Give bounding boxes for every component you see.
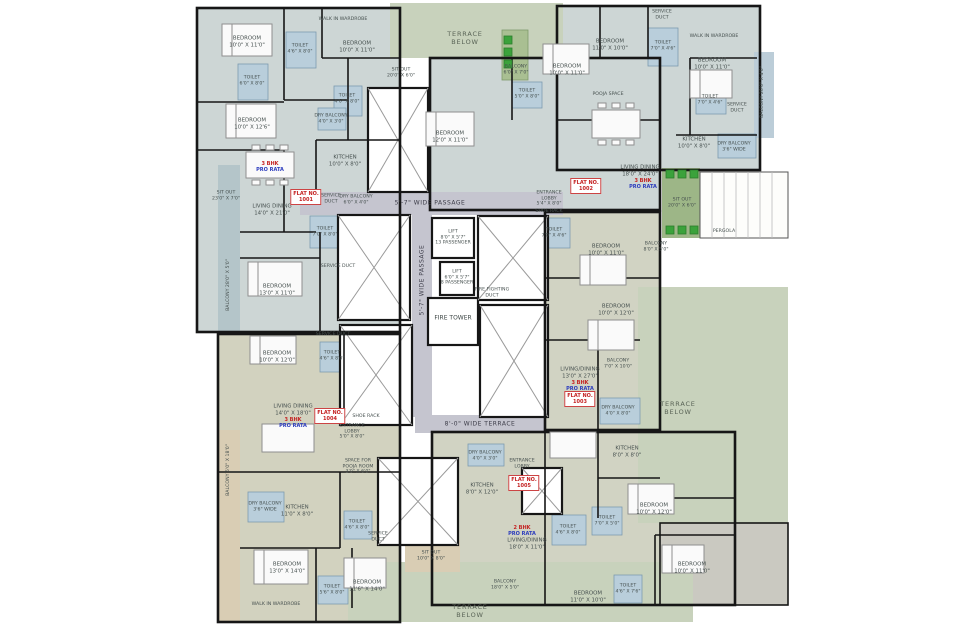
sitout-label: SIT OUT 20'0" X 6'0" xyxy=(387,67,415,78)
flat-number-badge: FLAT NO. 1004 xyxy=(314,408,345,424)
entrance-lobby-right-label: ENTRANCE LOBBY 5'4" X 8'0" xyxy=(536,191,561,208)
service-duct-label: SERVICE DUCT xyxy=(321,193,341,204)
sitout-label: SIT OUT 23'0" X 7'0" xyxy=(212,190,240,201)
dry-balcony-label: DRY BALCONY 6'0" X 4'0" xyxy=(339,194,372,205)
pooja-space-label: POOJA SPACE xyxy=(592,92,623,98)
dry-balcony-label: DRY BALCONY 3'6" WIDE xyxy=(717,141,750,152)
terrace-below-label: TERRACE BELOW xyxy=(660,400,695,416)
bedroom-label: BEDROOM 13'0" X 14'0" xyxy=(269,561,305,575)
flat-type-label: 3 BHK xyxy=(571,380,588,386)
bedroom-label: BEDROOM 10'0" X 11'0" xyxy=(229,35,265,49)
flat-number-badge: FLAT NO. 1003 xyxy=(564,391,595,407)
toilet-label: TOILET 4'6" X 8'0" xyxy=(319,350,344,361)
entrance-lobby-label: ENTRANCE LOBBY xyxy=(509,458,534,469)
balcony-label: BALCONY 5'0" X 18'0" xyxy=(226,444,232,496)
balcony-label: BALCONY 8'0" X 5'0" xyxy=(643,241,668,252)
bedroom-label: BEDROOM 10'0" X 11'0" xyxy=(674,561,710,575)
balcony-label: BALCONY 28'0" X 5'0" xyxy=(226,259,232,311)
toilet-label: TOILET 5'0" X 8'0" xyxy=(514,88,539,99)
passage-vertical-label: 5'-7" WIDE PASSAGE xyxy=(418,245,426,316)
kitchen-label: KITCHEN 8'0" X 8'0" xyxy=(613,445,642,459)
entrance-lobby-left-label: ENTRANCE LOBBY 5'0" X 8'0" xyxy=(339,424,364,441)
pergola-label: PERGOLA xyxy=(713,229,735,235)
dry-balcony-label: DRY BALCONY 4'0" X 3'0" xyxy=(314,113,347,124)
wardrobe-label: WALK IN WARDROBE xyxy=(319,17,368,23)
fire-duct-label: FIRE FIGHTING DUCT xyxy=(475,287,509,298)
bedroom-label: BEDROOM 11'0" X 10'0" xyxy=(570,590,606,604)
terrace-passage-label: 8'-0" WIDE TERRACE xyxy=(445,420,516,428)
living-dining-label: LIVING/DINING 13'0" X 27'0" xyxy=(560,366,599,380)
shoe-rack-right-label: SHOE RACK xyxy=(535,209,562,215)
flat-type-label: 3 BHK xyxy=(261,161,278,167)
flat-number-badge: FLAT NO. 1002 xyxy=(570,178,601,194)
flat-type-label: 3 BHK xyxy=(284,417,301,423)
toilet-label: TOILET 4'6" X 7'6" xyxy=(615,583,640,594)
bedroom-label: BEDROOM 10'0" X 11'0" xyxy=(549,63,585,77)
bedroom-label: BEDROOM 10'0" X 12'6" xyxy=(234,117,270,131)
toilet-label: TOILET 6'0" X 8'0" xyxy=(239,75,264,86)
bedroom-label: BEDROOM 10'0" X 11'0" xyxy=(694,57,730,71)
flat-number-badge: FLAT NO. 1001 xyxy=(290,189,321,205)
balcony-label: BALCONY 20'0" X 4'0" xyxy=(760,66,766,118)
toilet-core-label: TOILET 7'0" X 4'6" xyxy=(541,227,566,238)
fire-tower-label: FIRE TOWER xyxy=(434,314,471,322)
lift-13-passenger-label: LIFT 8'0" X 5'7" 13 PASSENGER xyxy=(435,230,470,247)
floor-plan: 5'-7" WIDE PASSAGE5'-7" WIDE PASSAGE8'-0… xyxy=(0,0,957,625)
passage-top-label: 5'-7" WIDE PASSAGE xyxy=(395,199,466,207)
bedroom-label: BEDROOM 11'6" X 14'0" xyxy=(349,579,385,593)
bedroom-label: BEDROOM 10'0" X 12'0" xyxy=(598,303,634,317)
service-duct-label: SERVICE DUCT xyxy=(652,9,672,20)
dry-balcony-label: DRY BALCONY 4'0" X 3'0" xyxy=(468,450,501,461)
terrace-below-label: TERRACE BELOW xyxy=(452,603,487,619)
toilet-label: TOILET 4'6" X 8'0" xyxy=(287,43,312,54)
bedroom-label: BEDROOM 10'0" X 12'0" xyxy=(259,350,295,364)
pooja-room-label: SPACE FOR POOJA ROOM 3'0" X 6'0" xyxy=(343,459,374,476)
service-duct-label: SERVICE DUCT xyxy=(368,531,388,542)
kitchen-label: KITCHEN 10'0" X 8'0" xyxy=(329,154,361,168)
dry-balcony-label: DRY BALCONY 4'0" X 8'0" xyxy=(601,405,634,416)
labels-layer: 5'-7" WIDE PASSAGE5'-7" WIDE PASSAGE8'-0… xyxy=(0,0,957,625)
shoe-rack-left-label: SHOE RACK xyxy=(352,414,379,420)
balcony-label: BALCONY 7'0" X 10'0" xyxy=(604,358,632,369)
pro-rata-label: PRO RATA xyxy=(256,167,284,173)
pro-rata-label: PRO RATA xyxy=(566,386,594,392)
kitchen-label: KITCHEN 8'0" X 12'0" xyxy=(466,482,498,496)
flat-type-label: 3 BHK xyxy=(634,178,651,184)
bedroom-label: BEDROOM 10'0" X 11'0" xyxy=(339,40,375,54)
kitchen-label: KITCHEN 10'0" X 8'0" xyxy=(678,136,710,150)
bedroom-label: BEDROOM 10'0" X 12'0" xyxy=(636,502,672,516)
balcony-label: BALCONY 18'0" X 5'0" xyxy=(491,579,519,590)
sitout-label: SIT OUT 20'0" X 6'0" xyxy=(668,197,696,208)
toilet-label: TOILET 7'0" X 4'6" xyxy=(650,40,675,51)
terrace-below-label: TERRACE BELOW xyxy=(447,30,482,46)
toilet-label: TOILET 7'0" X 4'6" xyxy=(697,94,722,105)
toilet-label: TOILET 5'6" X 8'0" xyxy=(319,584,344,595)
service-duct-label: SERVICE DUCT xyxy=(727,102,747,113)
service-duct-label: SERVICE DUCT xyxy=(321,264,355,270)
bedroom-label: BEDROOM 12'0" X 11'0" xyxy=(432,130,468,144)
living-dining-label: LIVING DINING 18'0" X 24'0" xyxy=(620,164,659,178)
living-dining-label: LIVING DINING 14'0" X 18'0" xyxy=(273,403,312,417)
wardrobe-label: WALK IN WARDROBE xyxy=(690,34,739,40)
toilet-label: TOILET 7'0" X 5'0" xyxy=(594,515,619,526)
wardrobe-label: WALK IN WARDROBE xyxy=(252,602,301,608)
bedroom-label: BEDROOM 10'0" X 11'0" xyxy=(588,243,624,257)
balcony-label: BALCONY 6'0" X 7'0" xyxy=(503,64,528,75)
flat-number-badge: FLAT NO. 1005 xyxy=(508,475,539,491)
kitchen-label: KITCHEN 11'0" X 8'0" xyxy=(281,504,313,518)
pro-rata-label: PRO RATA xyxy=(629,184,657,190)
flat-type-label: 2 BHK xyxy=(513,525,530,531)
toilet-label: TOILET 4'6" X 8'0" xyxy=(334,93,359,104)
bedroom-label: BEDROOM 11'0" X 10'0" xyxy=(592,38,628,52)
lift-8-passenger-label: LIFT 6'0" X 5'7" 8 PASSENGER xyxy=(441,270,473,287)
service-duct-label: SERVICE DUCT xyxy=(316,332,350,338)
toilet-label: TOILET 4'6" X 8'0" xyxy=(555,524,580,535)
pro-rata-label: PRO RATA xyxy=(279,423,307,429)
bedroom-label: BEDROOM 13'0" X 11'0" xyxy=(259,283,295,297)
pro-rata-label: PRO RATA xyxy=(508,531,536,537)
living-dining-label: LIVING DINING 14'0" X 21'0" xyxy=(252,203,291,217)
living-dining-label: LIVING/DINING 18'0" X 11'0" xyxy=(507,537,546,551)
sitout-label: SIT OUT 10'0" X 8'0" xyxy=(417,550,445,561)
dry-balcony-label: DRY BALCONY 3'6" WIDE xyxy=(248,501,281,512)
toilet-label: TOILET 7'0" X 8'0" xyxy=(312,226,337,237)
toilet-label: TOILET 4'6" X 8'0" xyxy=(344,519,369,530)
